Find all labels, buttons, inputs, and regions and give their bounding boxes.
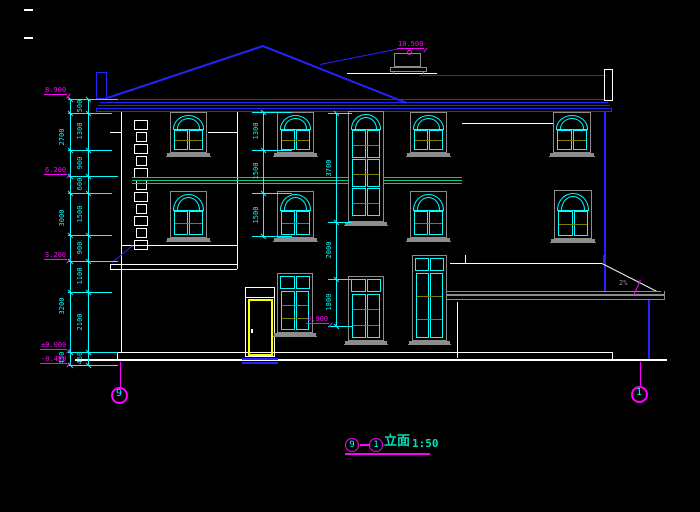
title-underline bbox=[345, 453, 430, 455]
quoin-block bbox=[136, 156, 147, 166]
dim-extension bbox=[252, 112, 292, 113]
glazing-bar bbox=[415, 223, 442, 224]
window-sill bbox=[273, 241, 318, 242]
awning-top bbox=[122, 245, 237, 246]
chimney-right bbox=[604, 69, 613, 101]
window-transom bbox=[415, 258, 429, 271]
window-pane bbox=[430, 273, 443, 338]
glazing-bar bbox=[282, 140, 309, 141]
window-pane bbox=[367, 294, 380, 338]
window-pane bbox=[367, 159, 380, 187]
title-dash bbox=[360, 444, 369, 446]
roof-post-left bbox=[96, 72, 107, 99]
slope-note: 2% bbox=[619, 279, 627, 287]
chimney-band-end bbox=[390, 67, 391, 71]
roof-slope-right bbox=[262, 45, 407, 104]
porch-slope bbox=[602, 263, 657, 292]
string-course bbox=[110, 132, 121, 133]
chimney-band bbox=[390, 71, 427, 72]
glazing-bar bbox=[353, 203, 379, 204]
door-leaf bbox=[248, 299, 273, 356]
roof-hip-back bbox=[320, 48, 400, 65]
cornice-line bbox=[104, 99, 604, 100]
axis-bubble-left-label: 9 bbox=[111, 390, 127, 398]
window-transom bbox=[280, 276, 295, 289]
door-step bbox=[242, 358, 278, 360]
window-sill bbox=[166, 156, 211, 157]
window-sill bbox=[406, 241, 451, 242]
window-sill bbox=[549, 156, 595, 157]
plinth-line bbox=[117, 352, 612, 353]
dim-extension bbox=[252, 150, 292, 151]
title-axis-to: 1 bbox=[369, 441, 383, 449]
glazing-bar bbox=[417, 319, 442, 320]
level-label: 0.900 bbox=[306, 315, 329, 324]
chimney-band bbox=[390, 67, 427, 68]
dim-label: 1300 bbox=[76, 116, 84, 146]
glazing-bar bbox=[415, 140, 442, 141]
awning-end bbox=[237, 264, 238, 269]
window-transom bbox=[367, 279, 381, 292]
glazing-bar bbox=[417, 296, 442, 297]
window-pane bbox=[352, 130, 366, 158]
window-pane bbox=[281, 291, 295, 330]
axis-bubble-right-label: 1 bbox=[631, 389, 647, 397]
dim-label: 3200 bbox=[58, 291, 66, 321]
porch-tick bbox=[465, 255, 466, 263]
cornice-end bbox=[96, 108, 97, 112]
awning-end bbox=[110, 264, 111, 269]
dim-label: 1100 bbox=[76, 261, 84, 291]
window-transom bbox=[430, 258, 444, 271]
dim-label: 1800 bbox=[325, 287, 333, 317]
window-pane bbox=[352, 159, 366, 187]
quoin-block bbox=[134, 216, 148, 226]
awning-fascia bbox=[110, 264, 237, 265]
window-pane bbox=[352, 294, 366, 338]
level-label: -0.450 bbox=[40, 355, 67, 364]
chimney-cap bbox=[394, 53, 421, 67]
string-course bbox=[208, 132, 237, 133]
quoin-block bbox=[134, 144, 148, 154]
dim-chain-window bbox=[263, 112, 264, 238]
dim-label: 3000 bbox=[58, 203, 66, 233]
glazing-bar bbox=[282, 305, 308, 306]
cornice-end bbox=[611, 108, 612, 112]
window-pane bbox=[352, 188, 366, 216]
quoin-block bbox=[136, 180, 147, 190]
window-sill bbox=[408, 344, 451, 345]
dim-label: 450 bbox=[76, 343, 84, 373]
dim-label: 600 bbox=[76, 169, 84, 199]
quoin-block bbox=[136, 228, 147, 238]
glazing-bar bbox=[353, 174, 379, 175]
roof-slope-left bbox=[107, 45, 264, 99]
dim-label: 2100 bbox=[76, 307, 84, 337]
window-sill bbox=[166, 241, 211, 242]
dim-label: 2700 bbox=[58, 122, 66, 152]
axis-line-right bbox=[640, 362, 641, 386]
level-symbol bbox=[407, 50, 412, 55]
level-label: 10.500 bbox=[397, 40, 424, 49]
porch-fascia bbox=[447, 291, 661, 292]
quoin-block bbox=[134, 120, 148, 130]
dim-label: 3700 bbox=[325, 153, 333, 183]
title-scale: 1:50 bbox=[412, 440, 439, 448]
glazing-bar bbox=[282, 318, 308, 319]
window-sill bbox=[344, 225, 388, 226]
cornice-line bbox=[96, 108, 612, 109]
dim-chain-inner bbox=[88, 99, 89, 365]
dim-label: 1500 bbox=[76, 199, 84, 229]
dim-extension bbox=[252, 236, 292, 237]
quoin-block bbox=[136, 204, 147, 214]
dim-chain-center bbox=[336, 113, 337, 326]
dim-extension bbox=[328, 279, 352, 280]
wall-left bbox=[121, 112, 122, 352]
dim-chain-outer bbox=[70, 99, 71, 365]
dim-extension bbox=[252, 193, 292, 194]
corner-mark bbox=[24, 9, 33, 11]
glazing-bar bbox=[175, 140, 202, 141]
porch-tick-blue bbox=[603, 255, 605, 263]
roof-ridge-blue bbox=[420, 75, 606, 76]
dim-label: 1500 bbox=[252, 156, 260, 186]
plinth-end bbox=[117, 352, 118, 359]
glazing-bar bbox=[175, 223, 202, 224]
wing-corner bbox=[237, 112, 238, 264]
dim-extension bbox=[328, 222, 352, 223]
glazing-bar bbox=[353, 309, 379, 310]
window-pane bbox=[296, 291, 309, 330]
dim-label: 1500 bbox=[252, 200, 260, 230]
porch-fascia bbox=[443, 294, 665, 296]
level-label: 6.200 bbox=[44, 166, 67, 175]
glazing-bar bbox=[353, 145, 379, 146]
dim-label: 2000 bbox=[325, 235, 333, 265]
dim-label: 900 bbox=[76, 233, 84, 263]
level-label: 8.900 bbox=[44, 86, 67, 95]
window-transom bbox=[296, 276, 310, 289]
level-label: 3.200 bbox=[44, 251, 67, 260]
window-sill bbox=[273, 156, 318, 157]
door-transom bbox=[245, 297, 275, 298]
porch-top bbox=[450, 263, 602, 264]
window-sill bbox=[273, 336, 317, 337]
quoin-block bbox=[134, 192, 148, 202]
chimney-foot bbox=[393, 71, 394, 74]
elevation-drawing-canvas: 2700 3000 3200 450 500 1300 900 600 1500… bbox=[0, 0, 700, 512]
ground-line bbox=[75, 359, 667, 361]
glazing-bar bbox=[282, 223, 309, 224]
glazing-bar bbox=[559, 224, 587, 225]
porch-fascia-end bbox=[664, 291, 665, 300]
dim-extension bbox=[328, 326, 352, 327]
quoin-block bbox=[136, 132, 147, 142]
dim-extension bbox=[328, 113, 352, 114]
window-transom bbox=[351, 279, 366, 292]
window-pane bbox=[416, 273, 429, 338]
window-sill bbox=[406, 156, 451, 157]
cornice-line bbox=[98, 105, 610, 106]
door-knob bbox=[251, 329, 253, 333]
title-label: 立面 bbox=[384, 438, 410, 446]
floor-band bbox=[132, 177, 462, 178]
dim-label: 1300 bbox=[252, 116, 260, 146]
window-sill bbox=[344, 344, 388, 345]
cornice-line bbox=[100, 102, 608, 103]
floor-band bbox=[132, 180, 462, 181]
window-pane bbox=[367, 188, 380, 216]
door-step bbox=[242, 362, 278, 364]
corner-mark bbox=[24, 37, 33, 39]
porch-post-left bbox=[457, 302, 458, 358]
porch-post-right bbox=[648, 300, 650, 359]
window-pane bbox=[367, 130, 380, 158]
title-axis-from: 9 bbox=[345, 441, 359, 449]
awning-fascia bbox=[110, 269, 237, 270]
chimney-foot bbox=[423, 71, 424, 74]
window-sill bbox=[550, 242, 596, 243]
porch-fascia bbox=[443, 299, 665, 300]
floor-band bbox=[132, 183, 462, 184]
level-label: ±0.000 bbox=[40, 341, 67, 350]
chimney-band-end bbox=[426, 67, 427, 71]
plinth-end bbox=[612, 352, 613, 359]
axis-line-left bbox=[120, 362, 121, 387]
glazing-bar bbox=[353, 325, 379, 326]
glazing-bar bbox=[558, 140, 586, 141]
